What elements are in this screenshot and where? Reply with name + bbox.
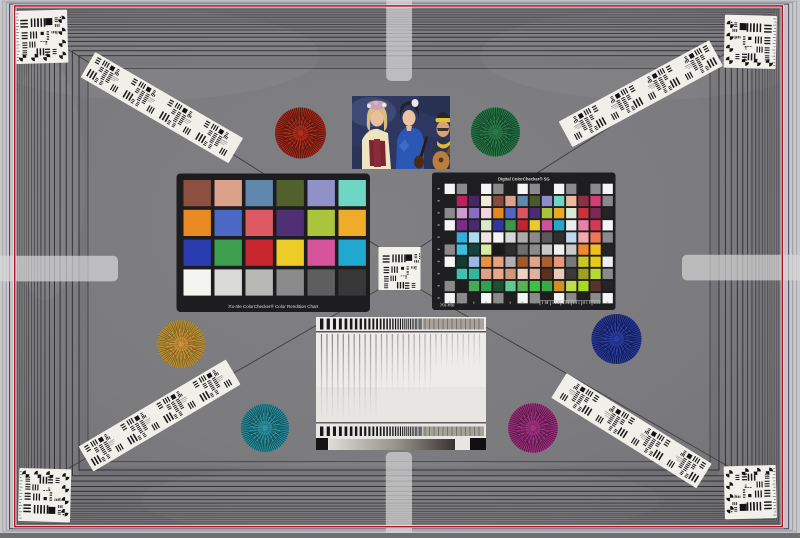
svg-text:⨉x-rite: ⨉x-rite <box>440 303 455 309</box>
svg-text:Digital ColorChecker® SG: Digital ColorChecker® SG <box>498 177 550 182</box>
svg-text:⨉x-rite ColorChecker® Color: ⨉x-rite ColorChecker® Color Rendition Ch… <box>228 303 319 309</box>
